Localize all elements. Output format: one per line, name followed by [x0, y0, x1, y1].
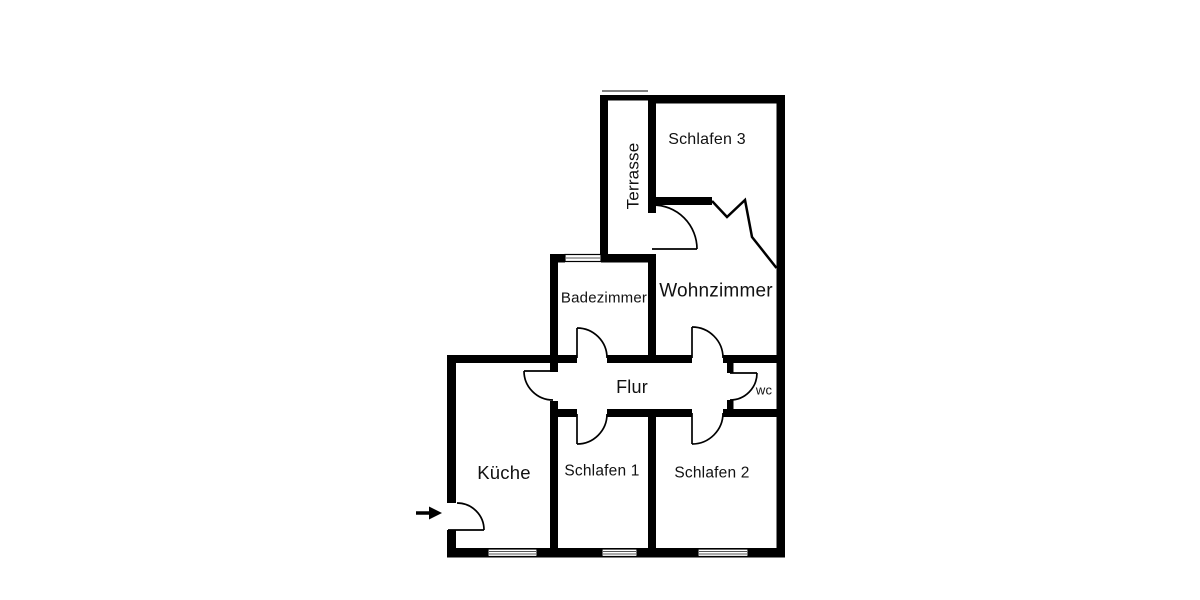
room-label-schlafen2: Schlafen 2 — [674, 465, 749, 481]
wall-segment — [550, 254, 565, 263]
kitchen-window — [488, 549, 537, 557]
wall-segment — [447, 530, 456, 548]
wall-segment — [648, 95, 656, 213]
bathroom-window — [565, 255, 601, 262]
wall-segment — [601, 254, 656, 263]
window-frame — [602, 549, 637, 557]
room-label-wc: wc — [756, 384, 772, 397]
wall-segment — [727, 363, 734, 373]
wall-segment — [600, 95, 608, 262]
room-label-schlafen3: Schlafen 3 — [668, 132, 746, 148]
window-frame — [698, 549, 748, 557]
wall-segment — [727, 400, 734, 417]
wall-segment — [777, 95, 786, 557]
floor-plan: Schlafen 3 Terrasse Badezimmer Wohnzimme… — [0, 0, 1200, 600]
room-label-badezimmer: Badezimmer — [561, 291, 647, 306]
room-label-terrasse: Terrasse — [625, 143, 642, 210]
bedroom1-window — [602, 549, 637, 557]
room-label-schlafen1: Schlafen 1 — [564, 463, 639, 479]
room-label-kueche: Küche — [477, 464, 530, 483]
wall-segment — [447, 355, 456, 503]
wall-segment — [550, 257, 558, 372]
wall-segment — [648, 409, 656, 548]
wall-segment — [648, 257, 656, 363]
window-frame — [488, 549, 537, 557]
bedroom2-window — [698, 549, 748, 557]
wall-segment — [648, 95, 785, 104]
wall-segment — [648, 197, 712, 205]
wall-segment — [550, 401, 558, 548]
wall-segment — [723, 355, 777, 363]
room-label-wohnzimmer: Wohnzimmer — [659, 282, 773, 301]
room-label-flur: Flur — [616, 378, 648, 396]
